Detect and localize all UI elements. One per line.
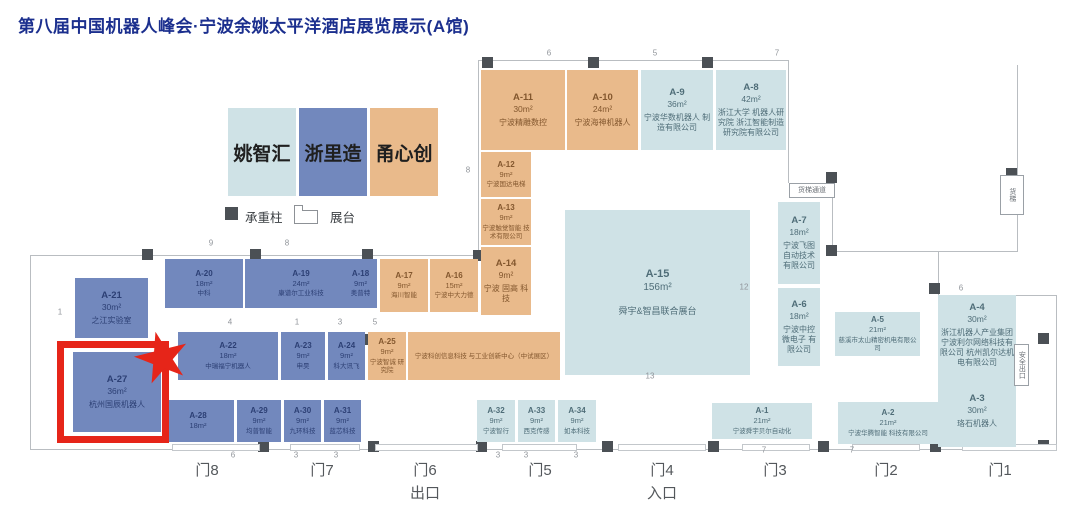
booth-bid: A-2 bbox=[882, 408, 895, 418]
wall-number: 12 bbox=[740, 283, 749, 292]
booth-bid: A-5 bbox=[871, 315, 884, 325]
booth-A-19: A-1924m²康谱尔工业科技 bbox=[245, 259, 357, 308]
booth-bsize: 21m² bbox=[753, 416, 770, 425]
booth-A-32: A-329m²宁波智行 bbox=[477, 400, 515, 442]
legend-category-yaozhihui: 姚智汇 bbox=[228, 108, 296, 196]
booth-bco: 宁波精雕数控 bbox=[499, 118, 547, 128]
door-name: 门1 bbox=[988, 460, 1011, 483]
booth-bid: A-24 bbox=[338, 341, 355, 351]
booth-A-10: A-1024m²宁波海神机器人 bbox=[567, 70, 638, 150]
load-bearing-column bbox=[826, 172, 837, 183]
booth-bco: 奥普特 bbox=[351, 290, 371, 298]
booth-bsize: 9m² bbox=[499, 270, 514, 281]
booth-area: 宁波科创信息科技 与工业创新中心（中试展区） bbox=[408, 332, 560, 380]
load-bearing-column bbox=[708, 441, 719, 452]
booth-A-2: A-221m²宁波华腾智能 科技有限公司 bbox=[838, 402, 938, 444]
door-name: 门7 bbox=[310, 460, 333, 483]
booth-bco: 科大讯飞 bbox=[334, 363, 360, 371]
booth-bco: 中瑞福宁机器人 bbox=[205, 363, 251, 371]
booth-bid: A-4 bbox=[969, 302, 984, 314]
wall-number: 3 bbox=[496, 451, 500, 460]
column-legend-label: 承重柱 bbox=[245, 207, 283, 226]
booth-legend-icon bbox=[294, 210, 318, 224]
booth-bco: 浙江大学 机器人研究院 浙江智能制造 研究院有限公司 bbox=[717, 108, 785, 138]
legend-category-label: 浙里造 bbox=[304, 139, 361, 166]
booth-A-8: A-842m²浙江大学 机器人研究院 浙江智能制造 研究院有限公司 bbox=[716, 70, 786, 150]
booth-A-31: A-319m²蓝芯科技 bbox=[324, 400, 361, 442]
door-label-门1: 门1 bbox=[988, 460, 1011, 483]
booth-bsize: 24m² bbox=[292, 279, 309, 288]
legend-category-zhelizao: 浙里造 bbox=[299, 108, 367, 196]
booth-A-12: A-129m²宁波国达电梯 bbox=[481, 152, 531, 197]
booth-bsize: 21m² bbox=[879, 418, 896, 427]
wall-number: 9 bbox=[209, 239, 213, 248]
door-name: 门2 bbox=[874, 460, 897, 483]
booth-bsize: 9m² bbox=[500, 170, 513, 179]
load-bearing-column bbox=[602, 441, 613, 452]
booth-bco: 中科 bbox=[198, 290, 211, 298]
booth-bco: 如本科技 bbox=[564, 428, 590, 436]
door-name: 门8 bbox=[195, 460, 218, 483]
booth-bid: A-16 bbox=[445, 271, 462, 281]
booth-bsize: 30m² bbox=[967, 405, 986, 416]
booth-bid: A-18 bbox=[352, 269, 369, 279]
booth-bco: 宁波中大力德 bbox=[435, 292, 474, 300]
booth-bsize: 30m² bbox=[513, 104, 532, 115]
booth-bco: 康谱尔工业科技 bbox=[278, 290, 324, 298]
wall-number: 7 bbox=[762, 446, 766, 455]
door-label-门3: 门3 bbox=[763, 460, 786, 483]
booth-bco: 宁波国达电梯 bbox=[487, 181, 526, 189]
booth-bid: A-14 bbox=[496, 258, 517, 270]
booth-bid: A-8 bbox=[743, 82, 758, 94]
annotation-货梯: 货梯 bbox=[1000, 175, 1024, 215]
booth-bsize: 156m² bbox=[643, 282, 671, 295]
door-name: 门3 bbox=[763, 460, 786, 483]
booth-bsize: 9m² bbox=[500, 213, 513, 222]
booth-bsize: 36m² bbox=[667, 99, 686, 110]
wall-number: 5 bbox=[373, 318, 377, 327]
booth-bco: 宁波 固高 科技 bbox=[482, 284, 530, 304]
booth-A-30: A-309m²九环科技 bbox=[284, 400, 321, 442]
booth-bco: 均普智能 bbox=[246, 428, 272, 436]
booth-A-14: A-149m²宁波 固高 科技 bbox=[481, 247, 531, 315]
door-label-门6: 门6出口 bbox=[410, 460, 440, 505]
booth-bco: 慈溪市太山精密机电有限公司 bbox=[836, 337, 919, 353]
load-bearing-column bbox=[929, 283, 940, 294]
booth-A-28: A-2818m² bbox=[162, 400, 234, 442]
booth-A-11: A-1130m²宁波精雕数控 bbox=[481, 70, 565, 150]
booth-bco: 宁波智行 bbox=[483, 428, 509, 436]
wall-segment bbox=[478, 60, 479, 256]
door-label-门8: 门8 bbox=[195, 460, 218, 483]
booth-bsize: 9m² bbox=[296, 416, 309, 425]
booth-bco: 蓝芯科技 bbox=[330, 428, 356, 436]
booth-A-4: A-430m²浙江机器人产业集团 宁波利尔网络科技有限公司 杭州凯尔达机电有限公… bbox=[938, 295, 1016, 375]
booth-bsize: 9m² bbox=[381, 347, 394, 356]
booth-bid: A-15 bbox=[646, 268, 670, 282]
door-name: 门5 bbox=[528, 460, 551, 483]
booth-A-3: A-330m²珞石机器人 bbox=[938, 375, 1016, 447]
booth-A-17: A-179m²海川智能 bbox=[380, 259, 428, 312]
wall-number: 4 bbox=[228, 318, 232, 327]
wall-number: 3 bbox=[574, 451, 578, 460]
booth-bid: A-21 bbox=[101, 290, 122, 302]
page-title: 第八届中国机器人峰会·宁波余姚太平洋酒店展览展示(A馆) bbox=[18, 12, 469, 37]
booth-bid: A-10 bbox=[592, 92, 613, 104]
wall-number: 3 bbox=[294, 451, 298, 460]
load-bearing-column bbox=[826, 245, 837, 256]
booth-bco: 宁波华腾智能 科技有限公司 bbox=[848, 430, 928, 438]
booth-bsize: 9m² bbox=[490, 416, 503, 425]
door-opening bbox=[375, 444, 478, 451]
booth-bsize: 9m² bbox=[571, 416, 584, 425]
booth-bco: 宁波中控 微电子 有限公司 bbox=[779, 325, 819, 355]
booth-bid: A-23 bbox=[294, 341, 311, 351]
floor-plan-page: 第八届中国机器人峰会·宁波余姚太平洋酒店展览展示(A馆) 姚智汇 浙里造 甬心创… bbox=[0, 0, 1080, 527]
wall-segment bbox=[1056, 295, 1057, 450]
booth-A-23: A-239m²申昊 bbox=[281, 332, 325, 380]
booth-A-33: A-339m²西克传感 bbox=[518, 400, 555, 442]
legend-category-label: 甬心创 bbox=[375, 139, 432, 166]
wall-number: 3 bbox=[338, 318, 342, 327]
booth-bsize: 42m² bbox=[741, 94, 760, 105]
booth-bco: 九环科技 bbox=[290, 428, 316, 436]
door-opening bbox=[618, 444, 706, 451]
wall-number: 7 bbox=[850, 446, 854, 455]
booth-bid: A-11 bbox=[513, 92, 533, 104]
booth-bsize: 18m² bbox=[195, 279, 212, 288]
booth-bco: 珞石机器人 bbox=[957, 419, 997, 429]
booth-bid: A-25 bbox=[378, 337, 395, 347]
booth-bsize: 9m² bbox=[340, 351, 353, 360]
wall-number: 1 bbox=[58, 308, 62, 317]
wall-segment bbox=[832, 251, 1017, 252]
legend-category-label: 姚智汇 bbox=[233, 139, 290, 166]
booth-bid: A-6 bbox=[791, 299, 806, 311]
booth-bsize: 21m² bbox=[869, 325, 886, 334]
booth-bco: 宁波触觉智能 技术有限公司 bbox=[482, 225, 530, 241]
booth-bco: 宁波智诚 研究院 bbox=[369, 359, 405, 375]
door-opening bbox=[502, 444, 577, 451]
booth-bid: A-22 bbox=[219, 341, 236, 351]
wall-segment bbox=[788, 60, 789, 183]
door-opening bbox=[172, 444, 260, 451]
wall-segment bbox=[30, 255, 31, 450]
door-opening bbox=[742, 444, 810, 451]
booth-bid: A-7 bbox=[791, 215, 806, 227]
booth-bco: 宁波飞图 自动技术 有限公司 bbox=[779, 241, 819, 271]
booth-bid: A-3 bbox=[969, 393, 984, 405]
wall-number: 8 bbox=[285, 239, 289, 248]
booth-bco: 浙江机器人产业集团 宁波利尔网络科技有限公司 杭州凯尔达机电有限公司 bbox=[939, 328, 1015, 368]
load-bearing-column bbox=[142, 249, 153, 260]
booth-bco: 申昊 bbox=[297, 363, 310, 371]
booth-bsize: 9m² bbox=[398, 281, 411, 290]
booth-bco: 舜宇&智昌联合展台 bbox=[618, 306, 696, 317]
booth-bsize: 18m² bbox=[789, 311, 808, 322]
wall-number: 6 bbox=[547, 49, 551, 58]
booth-bco: 宁波科创信息科技 与工业创新中心（中试展区） bbox=[415, 353, 553, 361]
booth-bid: A-17 bbox=[395, 271, 412, 281]
booth-bsize: 30m² bbox=[102, 302, 121, 313]
booth-A-5: A-521m²慈溪市太山精密机电有限公司 bbox=[835, 312, 920, 356]
booth-bid: A-9 bbox=[669, 87, 684, 99]
door-label-门5: 门5 bbox=[528, 460, 551, 483]
load-bearing-column bbox=[482, 57, 493, 68]
load-bearing-column bbox=[588, 57, 599, 68]
booth-bsize: 18m² bbox=[189, 421, 206, 430]
booth-A-24: A-249m²科大讯飞 bbox=[328, 332, 365, 380]
booth-bid: A-34 bbox=[568, 406, 585, 416]
booth-A-34: A-349m²如本科技 bbox=[558, 400, 596, 442]
booth-bsize: 9m² bbox=[297, 351, 310, 360]
booth-bid: A-31 bbox=[334, 406, 351, 416]
booth-bsize: 18m² bbox=[219, 351, 236, 360]
booth-A-25: A-259m²宁波智诚 研究院 bbox=[368, 332, 406, 380]
booth-A-20: A-2018m²中科 bbox=[165, 259, 243, 308]
booth-bid: A-29 bbox=[250, 406, 267, 416]
booth-A-1: A-121m²宁波舜宇贝尔自动化 bbox=[712, 403, 812, 439]
wall-number: 1 bbox=[295, 318, 299, 327]
booth-bsize: 9m² bbox=[354, 279, 367, 288]
booth-A-18: A-189m²奥普特 bbox=[344, 259, 377, 308]
booth-bsize: 15m² bbox=[445, 281, 462, 290]
wall-number: 6 bbox=[231, 451, 235, 460]
booth-A-16: A-1615m²宁波中大力德 bbox=[430, 259, 478, 312]
wall-segment bbox=[478, 60, 789, 61]
wall-number: 13 bbox=[646, 372, 655, 381]
booth-A-7: A-718m²宁波飞图 自动技术 有限公司 bbox=[778, 202, 820, 284]
annotation-货梯通道: 货梯通道 bbox=[789, 183, 835, 198]
booth-A-6: A-618m²宁波中控 微电子 有限公司 bbox=[778, 288, 820, 366]
wall-number: 3 bbox=[334, 451, 338, 460]
door-label-门2: 门2 bbox=[874, 460, 897, 483]
booth-legend-label: 展台 bbox=[330, 207, 355, 226]
booth-bid: A-28 bbox=[189, 411, 206, 421]
booth-bid: A-20 bbox=[195, 269, 212, 279]
booth-bco: 宁波华数机器人 制造有限公司 bbox=[642, 113, 712, 133]
wall-number: 3 bbox=[524, 451, 528, 460]
booth-bid: A-32 bbox=[487, 406, 504, 416]
door-label-门4: 门4入口 bbox=[647, 460, 677, 505]
wall-number: 8 bbox=[466, 166, 470, 175]
booth-bco: 西克传感 bbox=[524, 428, 550, 436]
booth-bid: A-13 bbox=[497, 203, 514, 213]
booth-A-15: A-15156m²舜宇&智昌联合展台 bbox=[565, 210, 750, 375]
load-bearing-column-icon bbox=[225, 207, 238, 220]
booth-bco: 海川智能 bbox=[391, 292, 417, 300]
booth-bid: A-19 bbox=[292, 269, 309, 279]
booth-bsize: 18m² bbox=[789, 227, 808, 238]
booth-bsize: 9m² bbox=[530, 416, 543, 425]
annotation-安全出口: 安全出口 bbox=[1014, 344, 1029, 386]
legend-category-yongxinchuang: 甬心创 bbox=[370, 108, 438, 196]
booth-bid: A-30 bbox=[294, 406, 311, 416]
booth-bid: A-33 bbox=[528, 406, 545, 416]
booth-bid: A-12 bbox=[497, 160, 514, 170]
booth-A-29: A-299m²均普智能 bbox=[237, 400, 281, 442]
booth-bsize: 9m² bbox=[253, 416, 266, 425]
booth-bsize: 24m² bbox=[593, 104, 612, 115]
booth-bco: 宁波舜宇贝尔自动化 bbox=[733, 428, 792, 436]
load-bearing-column bbox=[818, 441, 829, 452]
booth-A-22: A-2218m²中瑞福宁机器人 bbox=[178, 332, 278, 380]
wall-number: 7 bbox=[775, 49, 779, 58]
door-name: 门6 bbox=[410, 460, 440, 483]
wall-number: 5 bbox=[653, 49, 657, 58]
booth-bid: A-1 bbox=[756, 406, 769, 416]
booth-A-13: A-139m²宁波触觉智能 技术有限公司 bbox=[481, 199, 531, 245]
load-bearing-column bbox=[702, 57, 713, 68]
booth-A-21: A-2130m²之江实验室 bbox=[75, 278, 148, 338]
booth-bco: 之江实验室 bbox=[92, 316, 132, 326]
booth-bsize: 30m² bbox=[967, 314, 986, 325]
booth-bco: 宁波海神机器人 bbox=[575, 118, 631, 128]
door-direction-label: 出口 bbox=[410, 483, 440, 506]
door-opening bbox=[290, 444, 360, 451]
wall-segment bbox=[1017, 65, 1018, 252]
wall-number: 6 bbox=[959, 284, 963, 293]
booth-bsize: 9m² bbox=[336, 416, 349, 425]
booth-A-9: A-936m²宁波华数机器人 制造有限公司 bbox=[641, 70, 713, 150]
door-label-门7: 门7 bbox=[310, 460, 333, 483]
load-bearing-column bbox=[1038, 333, 1049, 344]
door-opening bbox=[852, 444, 920, 451]
door-direction-label: 入口 bbox=[647, 483, 677, 506]
door-name: 门4 bbox=[647, 460, 677, 483]
